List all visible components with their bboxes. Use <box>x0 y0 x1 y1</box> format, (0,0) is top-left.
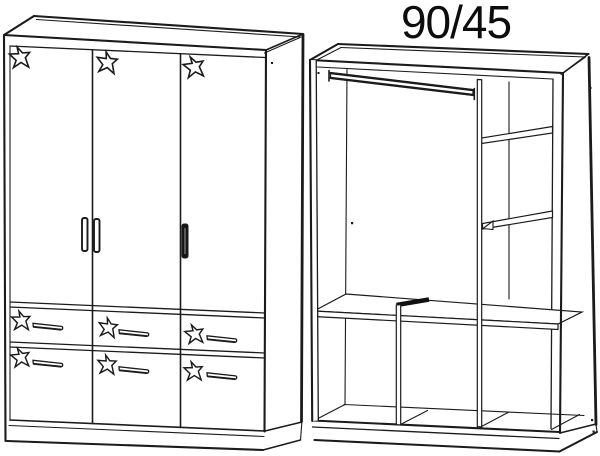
dowel-mark <box>590 87 592 89</box>
side-bottom-edge <box>560 424 596 433</box>
back-right-edge <box>589 58 596 425</box>
left-wardrobe-front-view <box>4 16 303 450</box>
left-wardrobe-plinth <box>7 420 302 450</box>
plinth-side-bottom <box>560 432 598 452</box>
interior-left-corner <box>345 70 347 405</box>
star-decoration <box>8 345 34 372</box>
drawer-handle <box>207 336 237 342</box>
hanging-rail <box>329 71 474 100</box>
left-outer-edge <box>4 35 6 441</box>
star-decoration <box>6 43 35 73</box>
right-wardrobe-interior-view <box>310 44 597 452</box>
drawer-handle <box>119 367 149 373</box>
star-decoration <box>182 321 208 348</box>
back-bottom-corner <box>596 425 597 433</box>
front-right-edge <box>560 73 563 433</box>
left-front-edge <box>310 60 318 421</box>
drawer-handle <box>33 360 63 366</box>
dowel-mark <box>591 419 593 421</box>
dowel-mark <box>351 222 353 224</box>
back-right-edge <box>302 35 304 422</box>
star-decoration <box>180 52 210 82</box>
drawer-handle <box>33 323 63 329</box>
door-handle-left <box>82 218 88 251</box>
left-wardrobe-drawer-lines <box>10 302 265 358</box>
dowel-mark <box>318 72 320 74</box>
star-decoration <box>94 50 120 78</box>
drawing-svg: 90/45 <box>0 0 600 456</box>
main-vertical-divider <box>477 80 509 428</box>
dowel-mark <box>271 62 273 64</box>
wardrobe-technical-drawing: 90/45 <box>0 0 600 456</box>
door-handle-middle <box>94 219 100 252</box>
interior-floor <box>316 405 584 430</box>
star-decoration <box>97 316 120 341</box>
drawer-handle <box>207 373 237 379</box>
front-right-edge <box>265 50 267 432</box>
full-width-shelf <box>314 294 582 330</box>
star-decoration <box>95 353 119 379</box>
right-wardrobe-plinth <box>313 421 560 452</box>
drawer-handle <box>119 330 149 336</box>
right-wardrobe-top-panel <box>310 44 589 75</box>
side-shelf-upper <box>482 127 553 144</box>
star-decoration <box>181 358 207 385</box>
dowel-mark <box>593 431 595 433</box>
dimension-label: 90/45 <box>401 0 511 48</box>
star-decoration <box>9 308 34 334</box>
